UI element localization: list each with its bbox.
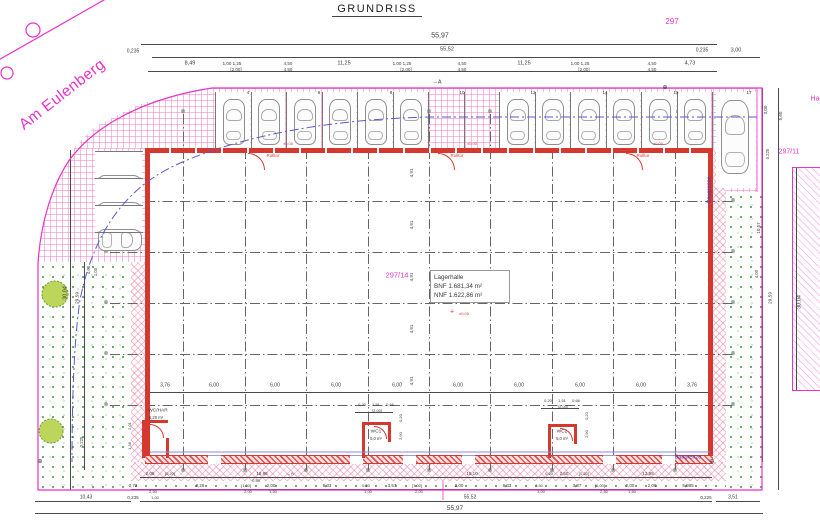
- bay-divider: [393, 92, 394, 148]
- dim-label: 1,51: [558, 399, 566, 403]
- dim-label: 18,95: [256, 472, 267, 477]
- dim-label: Rolltor: [266, 154, 279, 159]
- dim-label: 6,00: [209, 384, 219, 389]
- grid-marker-icon: ⊗: [730, 300, 735, 306]
- grid-marker-icon: ⊗: [672, 468, 677, 474]
- dim-label: [0,20]: [165, 472, 175, 476]
- wc1-wall: [362, 422, 365, 458]
- dim-label: 4,50: [648, 68, 657, 73]
- dim-label: 55,97: [447, 506, 463, 513]
- dim-label: 15,10: [466, 472, 477, 477]
- dim-label: WC/HAR: [148, 410, 167, 415]
- wc2-wall: [548, 424, 576, 427]
- grid-marker-icon: ⊗: [103, 402, 108, 408]
- dim-label: ⊕: [662, 85, 667, 91]
- dim-label: 4,50: [284, 62, 293, 67]
- bay-divider: [95, 151, 143, 152]
- bay-divider: [95, 232, 143, 233]
- dim-label: 0,72: [129, 484, 138, 489]
- dim-label: 1,00: [364, 490, 372, 494]
- dim-line: [796, 168, 797, 390]
- parcel-number-right: 297/11: [779, 149, 800, 156]
- dim-label: 0,50: [535, 484, 543, 488]
- parcel-label-clipped: Ha: [811, 96, 820, 103]
- hall-nnf: NNF 1.622,86 m²: [434, 291, 506, 300]
- dim-label: 1,00: [94, 268, 98, 276]
- dim-label: ±0,00: [459, 312, 469, 316]
- hall-bnf: BNF 1.681,34 m²: [434, 282, 506, 291]
- bay-divider: [535, 92, 536, 148]
- wc2-wall: [548, 424, 551, 458]
- parking-bay-number: 4: [247, 91, 250, 96]
- wc-har-wall: [142, 420, 145, 458]
- bay-divider: [499, 92, 500, 148]
- page-title: GRUNDRISS: [332, 3, 422, 17]
- dim-label: [2,00]: [578, 68, 589, 73]
- grid-marker-icon: ⊗: [487, 109, 492, 115]
- wc-har-wall: [142, 420, 168, 423]
- grid-line: [110, 303, 735, 304]
- door-gap: [662, 455, 675, 464]
- dim-label: [2,00]: [558, 405, 568, 409]
- grid-marker-icon: ⊗: [103, 351, 108, 357]
- dim-label: [1,00]: [412, 484, 422, 488]
- dim-label: 5,60: [779, 112, 784, 121]
- dim-label: 5,0 m²: [370, 437, 382, 441]
- dim-label: ⊕: [37, 459, 42, 465]
- car-icon: [542, 99, 564, 145]
- dim-label: 8,49: [185, 61, 196, 67]
- dim-label: 3,76: [160, 384, 170, 389]
- bay-divider: [215, 92, 216, 148]
- dim-label: WC2: [557, 431, 568, 436]
- dim-label: 0,20: [358, 403, 366, 407]
- bay-divider: [95, 178, 143, 179]
- dim-label: →A: [432, 80, 441, 86]
- dim-label: 2,00: [455, 484, 464, 489]
- dim-label: 6,20 m²: [149, 416, 163, 420]
- dim-label: 4,50: [284, 68, 293, 73]
- door-gap: [208, 455, 221, 464]
- dim-label: 0,20: [399, 414, 403, 422]
- car-icon: [329, 99, 351, 145]
- dim-label: 1,00: [151, 496, 159, 500]
- parking-bay-number: 12: [530, 91, 535, 96]
- door-arc-icon: [248, 153, 265, 170]
- dim-label: →A: [286, 472, 294, 477]
- dim-label: Rolltor: [636, 154, 649, 159]
- dim-line: [70, 150, 71, 490]
- car-icon: [578, 99, 600, 145]
- dim-label: 2,00: [267, 484, 276, 489]
- wc-har-door-arc-icon: [150, 424, 164, 438]
- car-icon: [649, 99, 671, 145]
- grid-marker-icon: ⊗: [610, 468, 615, 474]
- dim-label: 11,25: [517, 61, 530, 67]
- dim-label: 0,20: [585, 412, 589, 420]
- dim-label: 11,25: [337, 61, 350, 67]
- grid-line: [110, 354, 735, 355]
- dim-label: 0,225: [766, 149, 770, 159]
- dim-label: 6,00: [331, 384, 341, 389]
- wc-har-wall: [166, 438, 169, 458]
- dim-label: 0,50: [252, 479, 260, 483]
- dim-label: 2,00: [244, 490, 252, 494]
- baugrenze-label-horizontal: Baugrenze: [675, 455, 702, 461]
- grid-line: [110, 405, 735, 406]
- dim-label: 0,50: [362, 484, 370, 488]
- dim-label: 8,33: [503, 484, 512, 489]
- parking-bay: [95, 206, 142, 231]
- dim-label: 4,50: [648, 62, 657, 67]
- dim-label: 6,00: [514, 384, 524, 389]
- dim-label: 1,00 1,25: [571, 62, 590, 67]
- dim-label: 3,76: [687, 384, 697, 389]
- wc2-wall: [574, 424, 577, 444]
- dim-label: 1,00: [537, 490, 545, 494]
- dim-label: 3,57: [388, 484, 397, 489]
- dim-label: 3,00: [731, 48, 742, 54]
- dim-label: 29,59: [770, 292, 775, 304]
- dim-line: [716, 501, 760, 502]
- dim-label: 55,97: [431, 33, 449, 40]
- dim-label: 55,52: [464, 496, 477, 501]
- dim-label: 6,00: [575, 384, 585, 389]
- dim-label: 2,06: [146, 472, 155, 477]
- building-wall-bottom: [145, 455, 713, 464]
- car-icon: [223, 99, 245, 145]
- dim-label: [1,00]: [241, 484, 251, 488]
- car-icon: [400, 99, 422, 145]
- grid-line: [183, 114, 184, 470]
- dim-label: 0,225: [80, 437, 84, 447]
- grid-line: [110, 252, 735, 253]
- dim-line: [140, 501, 712, 502]
- dim-label: 8,26: [196, 484, 205, 489]
- dim-label: 2,00: [648, 484, 657, 489]
- parking-bay: [95, 152, 142, 177]
- dim-line: [141, 44, 717, 45]
- dim-label: 55,52: [440, 47, 454, 53]
- dim-label: 4,73: [685, 61, 696, 67]
- bay-divider: [428, 92, 429, 148]
- grid-marker-icon: ⊗: [730, 402, 735, 408]
- dim-label: 2,50: [560, 472, 569, 477]
- grid-marker-icon: ⊗: [180, 468, 185, 474]
- parking-bay-number: 10: [459, 91, 464, 96]
- bay-divider: [286, 92, 287, 148]
- dim-label: 4,91: [410, 169, 415, 178]
- dim-label: 30,04: [797, 295, 803, 309]
- hall-name: Lagerhalle: [434, 273, 506, 282]
- grid-marker-icon: ⊗: [103, 300, 108, 306]
- dim-label: 6,00: [453, 384, 463, 389]
- dim-label: 1,00 1,25: [393, 62, 412, 67]
- dim-label: 2,90: [399, 432, 403, 440]
- dim-label: 2,01: [128, 422, 132, 430]
- dim-label: 5,0 m²: [556, 437, 568, 441]
- parking-bay-number: 14: [602, 91, 607, 96]
- dim-label: +: [450, 309, 454, 316]
- dim-label: [1,00]: [595, 484, 605, 488]
- bay-divider: [712, 92, 713, 148]
- dim-label: 1,51: [372, 403, 380, 407]
- dim-label: 4,91: [410, 377, 415, 386]
- parking-bay-number: 8: [390, 91, 393, 96]
- street-label: Am Eulenberg: [16, 56, 109, 134]
- grid-marker-icon: ⊗: [242, 468, 247, 474]
- bay-divider: [464, 92, 465, 148]
- dim-label: 4,00: [87, 266, 91, 274]
- dim-label: 30,04: [63, 286, 69, 300]
- grid-marker-icon: ⊗: [730, 249, 735, 255]
- baugrenze-label-vertical: Baugrenze: [707, 177, 713, 204]
- dim-label: 1,00 1,25: [223, 62, 242, 67]
- bay-divider: [357, 92, 358, 148]
- dim-label: 2,50: [149, 490, 157, 494]
- dim-label: 0,225: [700, 496, 711, 501]
- grid-marker-icon: ⊗: [303, 468, 308, 474]
- dim-label: 1,50: [628, 490, 636, 494]
- parking-bay-number: 17: [746, 91, 751, 96]
- dim-label: 0,20: [545, 472, 553, 476]
- bay-divider: [606, 92, 607, 148]
- dim-label: 3,51: [728, 496, 738, 501]
- dim-label: ⊕: [709, 459, 714, 465]
- grid-marker-icon: ⊗: [487, 468, 492, 474]
- door-gap: [403, 455, 416, 464]
- bay-divider: [570, 92, 571, 148]
- dim-label: 4,91: [410, 221, 415, 230]
- dim-label: 0,66: [572, 399, 580, 403]
- dim-label: 6,00: [392, 384, 402, 389]
- dim-label: [2,00]: [400, 68, 411, 73]
- dim-label: 4,50: [458, 62, 467, 67]
- dim-label: 12,95: [642, 472, 653, 477]
- dim-label: 29,59: [77, 292, 82, 304]
- dim-line: [152, 57, 760, 58]
- dim-label: 0,66: [386, 403, 394, 407]
- grid-line: [552, 114, 553, 470]
- parking-bay-number: 15: [673, 91, 678, 96]
- door-gap: [462, 455, 475, 464]
- dim-label: ±0,00: [467, 142, 477, 146]
- grid-line: [110, 201, 735, 202]
- dim-label: [2,00]: [372, 409, 382, 413]
- hall-label-box: Lagerhalle BNF 1.681,34 m² NNF 1.622,86 …: [430, 270, 510, 303]
- bay-divider: [322, 92, 323, 148]
- dim-label: [2,00]: [230, 68, 241, 73]
- bay-divider: [251, 92, 252, 148]
- grid-marker-icon: ⊗: [365, 468, 370, 474]
- car-icon: [365, 99, 387, 145]
- grid-line: [368, 114, 369, 470]
- dim-label: 1,50: [269, 490, 277, 494]
- dim-label: ±0,00: [653, 142, 663, 146]
- grid-line: [613, 114, 614, 470]
- green-area-right: [726, 192, 762, 490]
- dim-line: [35, 501, 131, 502]
- dim-label: [0,20]: [579, 472, 589, 476]
- dim-label: 10,57: [757, 222, 762, 233]
- dim-label: 4,91: [410, 273, 415, 282]
- dim-label: 2,90: [585, 430, 589, 438]
- dim-label: 4,00: [755, 270, 759, 278]
- door-gap: [603, 455, 616, 464]
- wc1-wall: [388, 422, 391, 442]
- dim-label: 0,235: [696, 49, 709, 54]
- dim-label: 2,50: [600, 490, 608, 494]
- dim-label: ±0,00: [283, 142, 293, 146]
- dim-label: 2,00: [415, 490, 423, 494]
- grid-marker-icon: ⊗: [730, 198, 735, 204]
- dim-label: 0,235: [127, 50, 140, 55]
- dim-label: WC1: [371, 431, 382, 436]
- bay-divider: [641, 92, 642, 148]
- grid-line: [245, 114, 246, 470]
- dim-label: 6,00: [636, 384, 646, 389]
- dim-label: 6,00: [270, 384, 280, 389]
- dim-line: [762, 88, 763, 462]
- dim-line: [140, 477, 712, 478]
- dim-label: 1,38: [128, 442, 132, 450]
- car-icon: [294, 99, 316, 145]
- bay-divider: [95, 205, 143, 206]
- parking-bay-number: 6: [318, 91, 321, 96]
- dim-label: 4,91: [410, 325, 415, 334]
- grid-line: [675, 114, 676, 470]
- wc1-wall: [362, 422, 390, 425]
- grid-marker-icon: ⊗: [180, 109, 185, 115]
- dim-label: 3,87: [573, 484, 582, 489]
- bay-divider: [677, 92, 678, 148]
- dim-line: [149, 392, 709, 393]
- parking-bay: [95, 179, 142, 204]
- dim-label: Rolltor: [450, 154, 463, 159]
- dim-line: [84, 262, 85, 470]
- right-strip-hatch: [713, 148, 726, 462]
- car-icon: [613, 99, 635, 145]
- floor-plan-page: { "title": "GRUNDRISS", "street": "Am Eu…: [0, 0, 820, 520]
- parcel-number-main: 297/14: [386, 271, 409, 279]
- dim-label: 0,235: [127, 496, 138, 501]
- dim-label: 0,20: [544, 399, 552, 403]
- car-icon: [507, 99, 529, 145]
- car-icon: [721, 100, 749, 174]
- grid-marker-icon: ⊗: [730, 351, 735, 357]
- dim-label: 5,985: [682, 484, 693, 489]
- grid-line: [306, 114, 307, 470]
- dim-label: 3,00: [764, 106, 769, 115]
- dim-label: 2,00: [626, 484, 635, 489]
- dim-label: 8,33: [323, 484, 332, 489]
- car-icon: [684, 99, 706, 145]
- dim-label: 4,50: [458, 68, 467, 73]
- dim-line: [35, 513, 763, 514]
- car-icon: [258, 99, 280, 145]
- parcel-number-top: 297: [665, 18, 678, 26]
- dim-label: 10,43: [80, 496, 93, 501]
- grid-marker-icon: ⊗: [426, 468, 431, 474]
